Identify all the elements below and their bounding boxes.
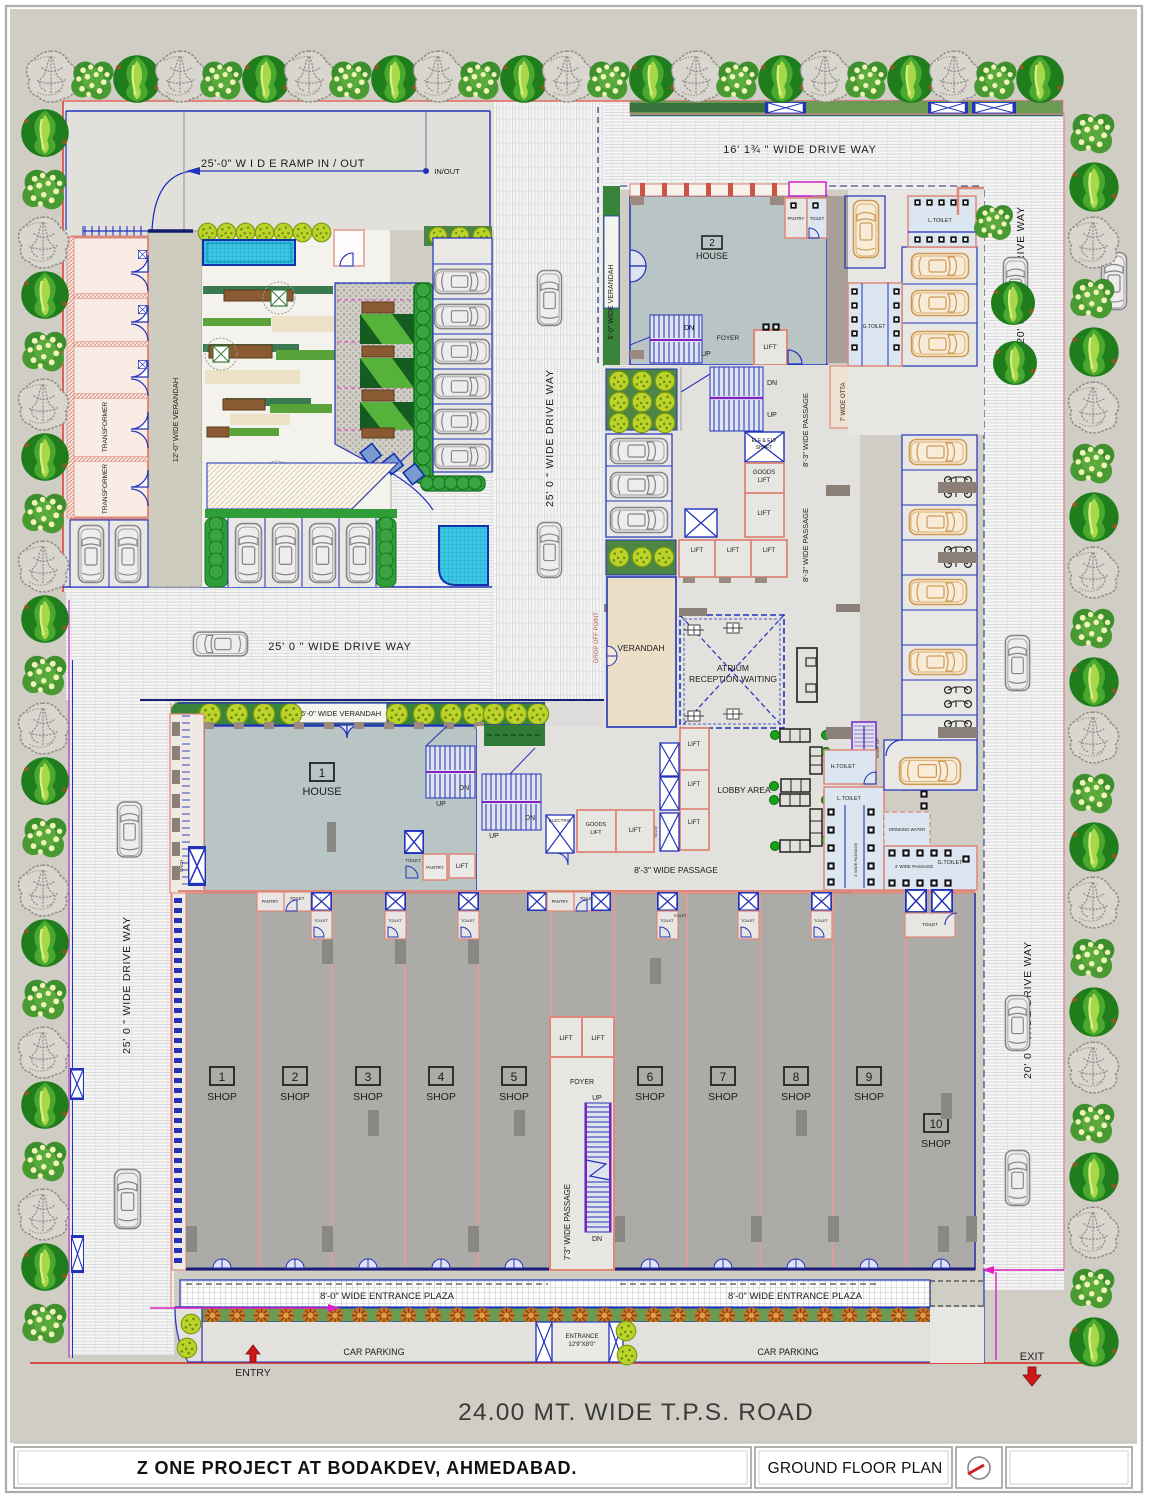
svg-text:TOILET: TOILET (388, 918, 402, 923)
svg-text:8'-3" WIDE PASSAGE: 8'-3" WIDE PASSAGE (801, 393, 810, 467)
svg-text:EXIT: EXIT (1020, 1351, 1045, 1363)
svg-text:4' WIDE PASSAGE: 4' WIDE PASSAGE (853, 842, 858, 877)
svg-text:Z ONE PROJECT AT BODAKDEV, AH: Z ONE PROJECT AT BODAKDEV, AHMEDABAD. (137, 1458, 577, 1478)
svg-text:8'-3" WIDE PASSAGE: 8'-3" WIDE PASSAGE (634, 865, 718, 875)
svg-text:LIFT: LIFT (763, 344, 776, 351)
svg-text:RECEPTION WAITING: RECEPTION WAITING (689, 674, 777, 684)
svg-text:MACH: MACH (179, 860, 184, 872)
svg-text:TOILET: TOILET (814, 918, 828, 923)
svg-text:25' 0 " WIDE DRIVE WAY: 25' 0 " WIDE DRIVE WAY (121, 916, 133, 1054)
svg-text:4: 4 (438, 1070, 445, 1084)
svg-text:7: 7 (720, 1070, 727, 1084)
svg-text:DROP OFF POINT: DROP OFF POINT (594, 612, 600, 663)
svg-text:TOILET: TOILET (314, 918, 328, 923)
svg-text:UP: UP (489, 833, 499, 840)
svg-text:4' WIDE PASSAGE: 4' WIDE PASSAGE (895, 864, 934, 869)
svg-text:IN/OUT: IN/OUT (434, 167, 460, 176)
svg-text:UP: UP (592, 1095, 602, 1102)
svg-text:LIFT: LIFT (559, 1035, 572, 1042)
svg-text:DN: DN (767, 380, 777, 387)
svg-text:24.00 MT. WIDE T.P.S. ROAD: 24.00 MT. WIDE T.P.S. ROAD (458, 1399, 814, 1426)
svg-text:GOODS: GOODS (586, 822, 607, 828)
svg-text:FOYER: FOYER (570, 1079, 594, 1086)
svg-text:LIFT: LIFT (691, 548, 704, 554)
svg-text:ENTRY: ENTRY (235, 1367, 270, 1379)
svg-text:HOUSE: HOUSE (302, 786, 341, 798)
svg-text:SHOP: SHOP (499, 1091, 529, 1103)
svg-text:2: 2 (709, 238, 715, 249)
svg-text:SHAFT: SHAFT (756, 445, 772, 451)
svg-text:GROUND FLOOR PLAN: GROUND FLOOR PLAN (768, 1460, 943, 1477)
svg-text:TOILET: TOILET (810, 216, 825, 221)
svg-text:TRANSFORMER: TRANSFORMER (102, 402, 109, 453)
svg-text:SHOP: SHOP (921, 1138, 951, 1150)
svg-text:LIFT: LIFT (456, 864, 469, 870)
svg-text:L.TOILET: L.TOILET (928, 218, 952, 224)
svg-text:TOILET: TOILET (461, 918, 475, 923)
svg-text:ELECTRIC: ELECTRIC (549, 818, 572, 823)
svg-text:SHOP: SHOP (426, 1091, 456, 1103)
svg-text:LIFT: LIFT (688, 742, 701, 748)
svg-text:DN: DN (592, 1236, 602, 1243)
svg-text:LIFT: LIFT (727, 548, 740, 554)
svg-text:TRANSFORMER: TRANSFORMER (102, 464, 109, 515)
svg-text:7' WIDE OTTA: 7' WIDE OTTA (841, 382, 847, 421)
svg-text:LIFT: LIFT (629, 828, 642, 834)
svg-text:TOILET: TOILET (405, 858, 421, 863)
svg-text:SHOP: SHOP (207, 1091, 237, 1103)
svg-text:DRINKING WATER: DRINKING WATER (889, 827, 925, 832)
svg-text:16' 1¾ " WIDE DRIVE WAY: 16' 1¾ " WIDE DRIVE WAY (723, 144, 876, 156)
svg-text:5'-0" WIDE VERANDAH: 5'-0" WIDE VERANDAH (301, 709, 381, 718)
svg-text:SHOP: SHOP (781, 1091, 811, 1103)
svg-text:PANTRY: PANTRY (426, 865, 443, 870)
svg-text:UP: UP (701, 351, 711, 358)
svg-text:SHOP: SHOP (635, 1091, 665, 1103)
svg-text:G.TOILET: G.TOILET (938, 860, 964, 866)
svg-text:LIFT: LIFT (763, 548, 776, 554)
svg-text:LIFT: LIFT (590, 830, 602, 836)
svg-text:ENTRANCE: ENTRANCE (565, 1334, 598, 1340)
svg-text:GOODS: GOODS (753, 470, 775, 476)
svg-text:25'-0" W I D E RAMP IN / OUT: 25'-0" W I D E RAMP IN / OUT (201, 158, 365, 170)
svg-text:G.TOILET: G.TOILET (863, 324, 886, 330)
svg-text:8'-0" WIDE ENTRANCE PLAZA: 8'-0" WIDE ENTRANCE PLAZA (320, 1291, 455, 1302)
svg-text:H.TOILET: H.TOILET (831, 764, 856, 770)
svg-text:PANTRY: PANTRY (262, 899, 279, 904)
svg-text:CAR PARKING: CAR PARKING (343, 1347, 404, 1357)
svg-text:PANTRY: PANTRY (788, 216, 805, 221)
svg-text:HOUSE: HOUSE (696, 251, 728, 261)
svg-text:DN: DN (525, 815, 535, 822)
svg-text:FOYER: FOYER (717, 335, 740, 342)
svg-text:6: 6 (647, 1070, 654, 1084)
svg-text:LIFT: LIFT (591, 1035, 604, 1042)
svg-text:UP: UP (767, 412, 777, 419)
svg-text:3: 3 (365, 1070, 372, 1084)
svg-text:8: 8 (793, 1070, 800, 1084)
svg-text:8'-0" WIDE ENTRANCE PLAZA: 8'-0" WIDE ENTRANCE PLAZA (728, 1291, 863, 1302)
svg-text:SHOP: SHOP (708, 1091, 738, 1103)
svg-text:TOILET: TOILET (922, 922, 938, 927)
svg-text:LIFT: LIFT (757, 510, 770, 517)
svg-text:VERANDAH: VERANDAH (617, 643, 664, 653)
svg-text:ATRIUM: ATRIUM (717, 663, 749, 673)
svg-text:25' 0 " WIDE DRIVE WAY: 25' 0 " WIDE DRIVE WAY (268, 641, 411, 653)
svg-text:1: 1 (319, 766, 326, 780)
svg-text:5'-0" WIDE VERANDAH: 5'-0" WIDE VERANDAH (608, 264, 615, 339)
svg-text:12'-0" WIDE VERANDAH: 12'-0" WIDE VERANDAH (171, 378, 180, 463)
svg-text:10: 10 (930, 1119, 943, 1131)
svg-text:DN: DN (684, 325, 694, 332)
svg-text:ELE & ELV: ELE & ELV (752, 438, 777, 444)
svg-text:TOILET: TOILET (741, 918, 755, 923)
svg-text:12'9"X8'0": 12'9"X8'0" (568, 1342, 595, 1348)
svg-text:9: 9 (866, 1070, 873, 1084)
svg-text:UP: UP (436, 801, 446, 808)
svg-text:L.TOILET: L.TOILET (837, 796, 861, 802)
svg-text:SHOP: SHOP (280, 1091, 310, 1103)
svg-text:PANTRY: PANTRY (552, 899, 569, 904)
svg-text:LIFT: LIFT (688, 820, 701, 826)
svg-text:1: 1 (219, 1070, 226, 1084)
svg-text:SHOP: SHOP (854, 1091, 884, 1103)
svg-text:7'3" WIDE PASSAGE: 7'3" WIDE PASSAGE (563, 1184, 572, 1260)
svg-text:25' 0 " WIDE DRIVE WAY: 25' 0 " WIDE DRIVE WAY (544, 369, 556, 507)
svg-text:DN: DN (459, 785, 469, 792)
svg-text:8'-3" WIDE PASSAGE: 8'-3" WIDE PASSAGE (801, 508, 810, 582)
svg-text:LIFT: LIFT (758, 478, 771, 484)
svg-text:CAR PARKING: CAR PARKING (757, 1347, 818, 1357)
svg-text:LIFT: LIFT (688, 782, 701, 788)
svg-text:TOILET: TOILET (673, 913, 687, 918)
svg-text:SHOP: SHOP (353, 1091, 383, 1103)
svg-text:5: 5 (511, 1070, 518, 1084)
svg-text:TOILET: TOILET (660, 918, 674, 923)
svg-text:2: 2 (292, 1070, 299, 1084)
svg-text:LOBBY AREA: LOBBY AREA (717, 785, 771, 795)
